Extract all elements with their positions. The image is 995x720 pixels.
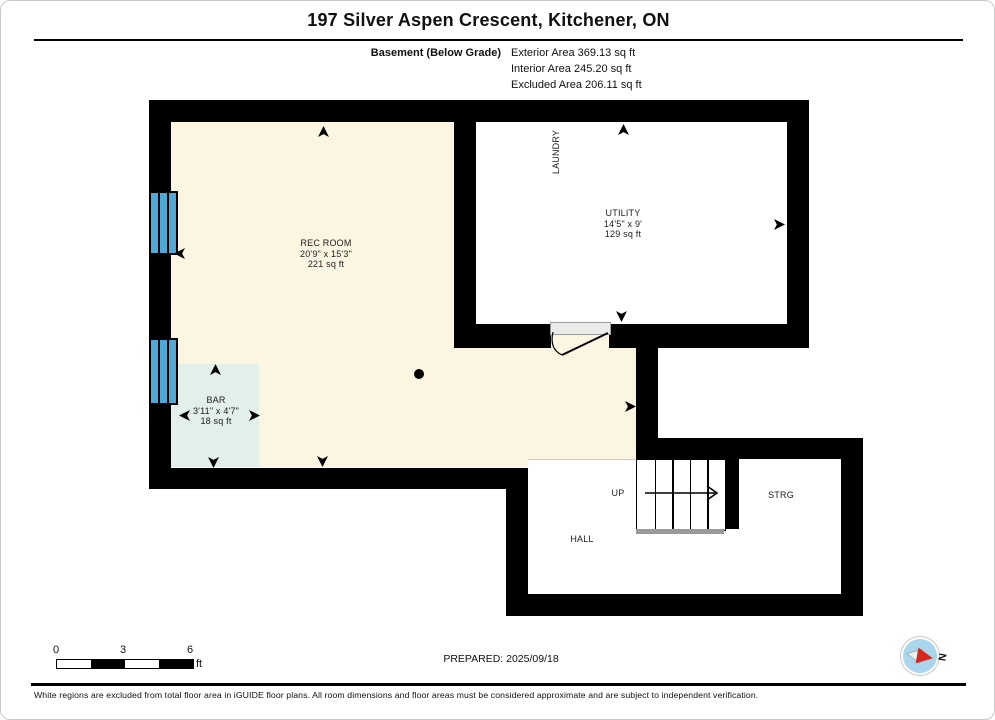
room-name: UTILITY: [548, 208, 698, 219]
laundry-label: LAUNDRY: [551, 102, 563, 202]
storage-label: STRG: [731, 490, 831, 501]
door-swing-icon: [541, 319, 621, 375]
compass-icon: [900, 636, 940, 676]
wall: [787, 122, 809, 348]
wall: [841, 438, 863, 616]
room-area: 221 sq ft: [251, 259, 401, 270]
wall: [149, 100, 809, 122]
scale-segment: [159, 660, 193, 668]
scale-tick-3: 3: [115, 644, 131, 656]
room-area: 129 sq ft: [548, 229, 698, 240]
bar-label: BAR 3'11" x 4'7" 18 sq ft: [166, 395, 266, 427]
wall: [149, 468, 528, 489]
utility-label: UTILITY 14'5" x 9' 129 sq ft: [548, 208, 698, 240]
region-boundary-line: [528, 459, 636, 460]
scale-tick-0: 0: [48, 644, 64, 656]
scale-segment: [57, 660, 91, 668]
wall: [454, 122, 476, 348]
prepared-date-label: PREPARED: 2025/09/18: [401, 653, 601, 665]
room-area: 18 sq ft: [166, 416, 266, 427]
room-name: REC ROOM: [251, 238, 401, 249]
room-name: BAR: [166, 395, 266, 406]
stairs-up-label: UP: [593, 488, 643, 499]
scale-unit-label: ft: [196, 658, 216, 670]
scale-segment: [91, 660, 125, 668]
compass-needle-icon: [901, 637, 939, 675]
wall: [658, 438, 863, 459]
wall: [636, 348, 658, 459]
scale-tick-6: 6: [182, 644, 198, 656]
column-marker: [414, 369, 424, 379]
wall: [454, 324, 809, 348]
staircase: [636, 459, 726, 531]
wall: [506, 594, 863, 616]
room-dims: 20'9" x 15'3": [251, 249, 401, 260]
room-dims: 3'11" x 4'7": [166, 406, 266, 417]
scale-bar: [56, 659, 194, 669]
disclaimer-text: White regions are excluded from total fl…: [34, 690, 974, 700]
window-icon: [149, 191, 178, 255]
floor-plan: REC ROOM 20'9" x 15'3" 221 sq ft UTILITY…: [1, 1, 995, 720]
hall-label: HALL: [532, 534, 632, 545]
stair-base-strip: [636, 529, 724, 534]
rec-room-label: REC ROOM 20'9" x 15'3" 221 sq ft: [251, 238, 401, 270]
footer-divider: [31, 683, 966, 686]
room-dims: 14'5" x 9': [548, 219, 698, 230]
floorplan-page: 197 Silver Aspen Crescent, Kitchener, ON…: [0, 0, 995, 720]
wall: [149, 122, 171, 489]
stairs-direction-arrow-icon: [637, 460, 722, 527]
scale-segment: [125, 660, 159, 668]
